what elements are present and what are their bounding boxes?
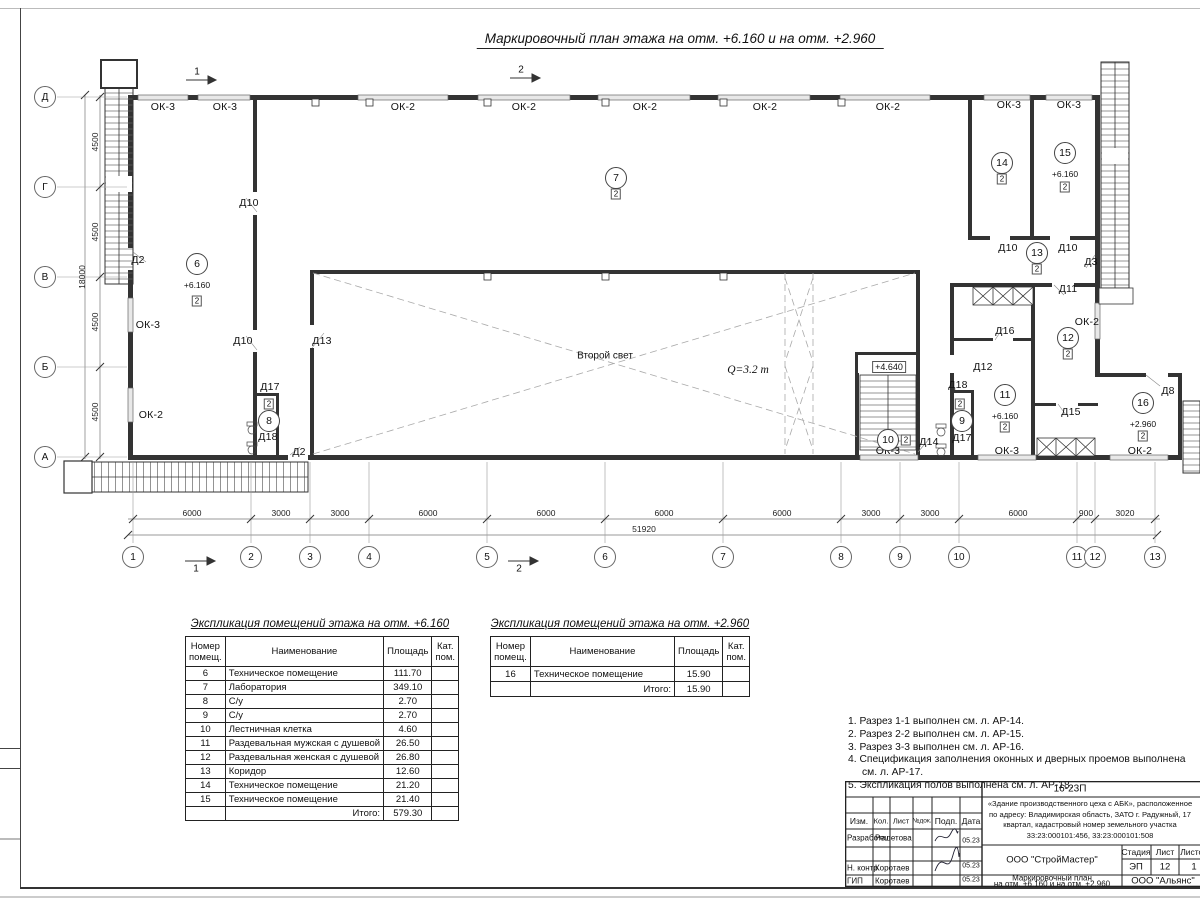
axis-bottom-1: 1 xyxy=(122,546,144,568)
dimension-total: 18000 xyxy=(77,265,87,289)
dimension-value: 6000 xyxy=(419,508,438,518)
table-cell: Техническое помещение xyxy=(225,793,383,807)
note-item: 3. Разрез 3-3 выполнен см. л. АР-16. xyxy=(848,742,1190,755)
note-item: 4. Спецификация заполнения оконных и две… xyxy=(848,754,1190,780)
window-label: ОК-3 xyxy=(995,445,1019,457)
table-cell: Раздевальная женская с душевой xyxy=(225,751,383,765)
room-number-marker: 11 xyxy=(994,384,1016,406)
dimension-value: 3020 xyxy=(1116,508,1135,518)
table-row: 15Техническое помещение21.40 xyxy=(186,793,459,807)
door-label: Д15 xyxy=(1061,406,1080,418)
note-item: 1. Разрез 1-1 выполнен см. л. АР-14. xyxy=(848,716,1190,729)
section-mark-number: 2 xyxy=(518,65,524,76)
table-cell: Техническое помещение xyxy=(530,667,674,682)
staff-name: Решетова xyxy=(875,834,912,843)
table-row: 11Раздевальная мужская с душевой26.50 xyxy=(186,737,459,751)
dimension-value: 6000 xyxy=(537,508,556,518)
section-mark-number: 1 xyxy=(194,67,200,78)
column-header: Площадь xyxy=(384,637,432,667)
room-number-marker: 14 xyxy=(991,152,1013,174)
room-category-box: 2 xyxy=(1032,264,1042,275)
column-header: Номер помещ. xyxy=(491,637,531,667)
axis-left-В: В xyxy=(34,266,56,288)
column-header: Наименование xyxy=(530,637,674,667)
col-kol: Кол. xyxy=(874,817,889,826)
door-label: Д17 xyxy=(260,381,279,393)
table-row: 9С/у2.70 xyxy=(186,709,459,723)
axis-left-Б: Б xyxy=(34,356,56,378)
table-cell xyxy=(723,682,750,697)
window-label: ОК-2 xyxy=(139,409,163,421)
table-cell: Раздевальная мужская с душевой xyxy=(225,737,383,751)
table-row: 6Техническое помещение111.70 xyxy=(186,667,459,681)
table-cell: 7 xyxy=(186,681,226,695)
axis-bottom-9: 9 xyxy=(889,546,911,568)
door-label: Д13 xyxy=(312,335,331,347)
column-header: Кат. пом. xyxy=(723,637,750,667)
dimension-value: 900 xyxy=(1079,508,1093,518)
room-number-marker: 9 xyxy=(951,410,973,432)
note-item: 2. Разрез 2-2 выполнен см. л. АР-15. xyxy=(848,729,1190,742)
table-cell xyxy=(186,807,226,821)
col-izm: Изм. xyxy=(850,816,868,826)
room-elevation: +6.160 xyxy=(991,411,1019,421)
sheet-value: 12 xyxy=(1160,862,1171,873)
axis-bottom-13: 13 xyxy=(1144,546,1166,568)
staff-name: Коротаев xyxy=(875,864,910,873)
table-cell: Техническое помещение xyxy=(225,779,383,793)
table-cell: 349.10 xyxy=(384,681,432,695)
room-category-box: 2 xyxy=(955,399,965,410)
margin-divider xyxy=(0,748,20,749)
column-header: Кат. пом. xyxy=(432,637,459,667)
door-label: Д12 xyxy=(973,361,992,373)
dimension-value: 4500 xyxy=(90,403,100,422)
axis-left-Г: Г xyxy=(34,176,56,198)
staff-role: ГИП xyxy=(847,877,863,886)
frame-outer-gray xyxy=(0,896,1200,898)
table-row: 10Лестничная клетка4.60 xyxy=(186,723,459,737)
table-cell: Техническое помещение xyxy=(225,667,383,681)
expl-table-6160: Экспликация помещений этажа на отм. +6.1… xyxy=(185,618,455,821)
window-label: ОК-2 xyxy=(391,101,415,113)
room-number-marker: 12 xyxy=(1057,327,1079,349)
window-label: ОК-3 xyxy=(151,101,175,113)
drawing-sheet: { "sheet": { "title": "Маркировочный пла… xyxy=(0,0,1200,900)
room-category-box: 2 xyxy=(997,174,1007,185)
door-label: Д8 xyxy=(1161,385,1174,397)
axis-bottom-6: 6 xyxy=(594,546,616,568)
section-mark-number: 1 xyxy=(193,564,199,575)
table-cell xyxy=(432,681,459,695)
window-label: ОК-2 xyxy=(633,101,657,113)
room-category-box: 2 xyxy=(1138,431,1148,442)
door-label: Д11 xyxy=(1059,283,1078,295)
dimension-value: 3000 xyxy=(862,508,881,518)
door-label: Д14 xyxy=(919,436,938,448)
room-category-box: 2 xyxy=(192,296,202,307)
door-label: Д18 xyxy=(948,379,967,391)
table-cell xyxy=(491,682,531,697)
table-row: 12Раздевальная женская с душевой26.80 xyxy=(186,751,459,765)
expl-table-2960: Экспликация помещений этажа на отм. +2.9… xyxy=(490,618,750,697)
dimension-value: 6000 xyxy=(773,508,792,518)
title-block: 16-23П «Здание производственного цеха с … xyxy=(845,781,1200,887)
window-label: ОК-3 xyxy=(997,99,1021,111)
room-number-marker: 6 xyxy=(186,253,208,275)
window-label: ОК-2 xyxy=(876,101,900,113)
exploitation-table: Номер помещ.НаименованиеПлощадьКат. пом.… xyxy=(490,636,750,697)
staff-name: Коротаев xyxy=(875,877,910,886)
dimension-value: 4500 xyxy=(90,313,100,332)
door-label: Д2 xyxy=(292,446,305,458)
table-cell: 9 xyxy=(186,709,226,723)
dimension-value: 4500 xyxy=(90,133,100,152)
window-label: ОК-2 xyxy=(1075,316,1099,328)
table-cell: 2.70 xyxy=(384,695,432,709)
column-header: Номер помещ. xyxy=(186,637,226,667)
total-value: 15.90 xyxy=(675,682,723,697)
table-row: 14Техническое помещение21.20 xyxy=(186,779,459,793)
org-name: ООО "СтройМастер" xyxy=(1006,855,1098,866)
table-cell: 26.50 xyxy=(384,737,432,751)
doc-title-line2: на отм. +6.160 и на отм. +2.960 xyxy=(994,880,1110,889)
axis-bottom-10: 10 xyxy=(948,546,970,568)
table-cell: 26.80 xyxy=(384,751,432,765)
table-cell: Лестничная клетка xyxy=(225,723,383,737)
table-cell: 10 xyxy=(186,723,226,737)
room-number-marker: 15 xyxy=(1054,142,1076,164)
table-row: 16Техническое помещение15.90 xyxy=(491,667,750,682)
door-label: Д17 xyxy=(952,432,971,444)
sheets-col: Листов xyxy=(1180,847,1200,857)
table-cell xyxy=(432,695,459,709)
axis-bottom-8: 8 xyxy=(830,546,852,568)
room-number-marker: 7 xyxy=(605,167,627,189)
room-category-box: 2 xyxy=(1000,422,1010,433)
table-cell xyxy=(432,737,459,751)
table-cell xyxy=(432,723,459,737)
sheets-value: 1 xyxy=(1191,862,1196,873)
room-number-marker: 10 xyxy=(877,429,899,451)
door-label: Д16 xyxy=(995,325,1014,337)
staff-date: 05.23 xyxy=(962,863,980,870)
table-cell: 15.90 xyxy=(675,667,723,682)
table-cell: 16 xyxy=(491,667,531,682)
dimension-total: 51920 xyxy=(632,524,656,534)
axis-bottom-4: 4 xyxy=(358,546,380,568)
stage-value: ЭП xyxy=(1129,862,1143,873)
table-cell: 2.70 xyxy=(384,709,432,723)
room-elevation: +6.160 xyxy=(183,280,211,290)
table-cell xyxy=(432,667,459,681)
dimension-value: 6000 xyxy=(655,508,674,518)
door-label: Д2 xyxy=(131,254,144,266)
table-cell xyxy=(723,667,750,682)
axis-left-А: А xyxy=(34,446,56,468)
total-value: 579.30 xyxy=(384,807,432,821)
total-row: Итого:579.30 xyxy=(186,807,459,821)
staff-date: 05.23 xyxy=(962,877,980,884)
project-description: «Здание производственного цеха с АБК», р… xyxy=(984,799,1196,841)
room-category-box: 2 xyxy=(1063,349,1073,360)
col-podp: Подп. xyxy=(935,816,958,826)
window-label: ОК-3 xyxy=(1057,99,1081,111)
room-elevation: +6.160 xyxy=(1051,169,1079,179)
table-cell: 12 xyxy=(186,751,226,765)
room-number-marker: 13 xyxy=(1026,242,1048,264)
staff-date: 05.23 xyxy=(962,838,980,845)
door-label: Д10 xyxy=(998,242,1017,254)
column-header: Наименование xyxy=(225,637,383,667)
window-label: ОК-3 xyxy=(213,101,237,113)
doc-code: 16-23П xyxy=(1054,784,1087,795)
table-cell: 13 xyxy=(186,765,226,779)
door-label: Д3 xyxy=(1084,256,1097,268)
axis-bottom-3: 3 xyxy=(299,546,321,568)
room-category-box: 2 xyxy=(901,435,911,446)
total-label: Итого: xyxy=(225,807,383,821)
table-cell: 21.40 xyxy=(384,793,432,807)
column-header: Площадь xyxy=(675,637,723,667)
margin-divider xyxy=(0,768,20,769)
table-header-row: Номер помещ.НаименованиеПлощадьКат. пом. xyxy=(186,637,459,667)
room-category-box: 2 xyxy=(1060,182,1070,193)
window-label: ОК-2 xyxy=(1128,445,1152,457)
table-cell: 6 xyxy=(186,667,226,681)
door-label: Д10 xyxy=(233,335,252,347)
table-row: 8С/у2.70 xyxy=(186,695,459,709)
plan-text: +4.640 xyxy=(872,361,906,373)
room-category-box: 2 xyxy=(264,399,274,410)
table-header-row: Номер помещ.НаименованиеПлощадьКат. пом. xyxy=(491,637,750,667)
plan-text: Второй свет xyxy=(577,351,633,362)
col-ndok: №док. xyxy=(912,818,931,825)
col-data: Дата xyxy=(962,816,981,826)
table-cell: Лаборатория xyxy=(225,681,383,695)
table-cell xyxy=(432,709,459,723)
table-cell: Коридор xyxy=(225,765,383,779)
dimension-value: 4500 xyxy=(90,223,100,242)
table-cell xyxy=(432,751,459,765)
total-row: Итого:15.90 xyxy=(491,682,750,697)
window-label: ОК-3 xyxy=(136,319,160,331)
table-cell: 111.70 xyxy=(384,667,432,681)
room-elevation: +2.960 xyxy=(1129,419,1157,429)
table-cell xyxy=(432,793,459,807)
table-title: Экспликация помещений этажа на отм. +6.1… xyxy=(185,618,455,630)
exploitation-table: Номер помещ.НаименованиеПлощадьКат. пом.… xyxy=(185,636,459,821)
table-cell: 11 xyxy=(186,737,226,751)
door-label: Д10 xyxy=(1058,242,1077,254)
axis-bottom-7: 7 xyxy=(712,546,734,568)
section-mark-number: 2 xyxy=(516,564,522,575)
door-label: Д18 xyxy=(258,431,277,443)
col-list: Лист xyxy=(893,817,909,826)
table-cell: 14 xyxy=(186,779,226,793)
table-row: 13Коридор12.60 xyxy=(186,765,459,779)
room-number-marker: 16 xyxy=(1132,392,1154,414)
room-number-marker: 8 xyxy=(258,410,280,432)
dimension-value: 3000 xyxy=(272,508,291,518)
axis-left-Д: Д xyxy=(34,86,56,108)
signature-curve xyxy=(935,829,959,871)
door-label: Д10 xyxy=(239,197,258,209)
table-cell: 12.60 xyxy=(384,765,432,779)
axis-bottom-2: 2 xyxy=(240,546,262,568)
table-cell: 4.60 xyxy=(384,723,432,737)
plan-labels-layer: ОК-3ОК-3ОК-2ОК-2ОК-2ОК-2ОК-2ОК-3ОК-3ОК-3… xyxy=(0,0,1200,600)
table-cell: 15 xyxy=(186,793,226,807)
window-label: ОК-2 xyxy=(753,101,777,113)
table-cell xyxy=(432,807,459,821)
dimension-value: 6000 xyxy=(183,508,202,518)
sheet-col: Лист xyxy=(1156,847,1174,857)
plan-text: Q=3.2 т xyxy=(727,364,769,376)
axis-bottom-5: 5 xyxy=(476,546,498,568)
org2-name: ООО "Альянс" xyxy=(1131,876,1195,887)
axis-bottom-12: 12 xyxy=(1084,546,1106,568)
table-row: 7Лаборатория349.10 xyxy=(186,681,459,695)
window-label: ОК-2 xyxy=(512,101,536,113)
table-cell: 8 xyxy=(186,695,226,709)
table-cell: С/у xyxy=(225,709,383,723)
margin-divider xyxy=(0,838,20,840)
table-cell xyxy=(432,779,459,793)
table-cell xyxy=(432,765,459,779)
table-cell: С/у xyxy=(225,695,383,709)
stage-col: Стадия xyxy=(1122,847,1151,857)
dimension-value: 6000 xyxy=(1009,508,1028,518)
dimension-value: 3000 xyxy=(331,508,350,518)
total-label: Итого: xyxy=(530,682,674,697)
dimension-value: 3000 xyxy=(921,508,940,518)
room-category-box: 2 xyxy=(611,189,621,200)
table-cell: 21.20 xyxy=(384,779,432,793)
table-title: Экспликация помещений этажа на отм. +2.9… xyxy=(490,618,750,630)
